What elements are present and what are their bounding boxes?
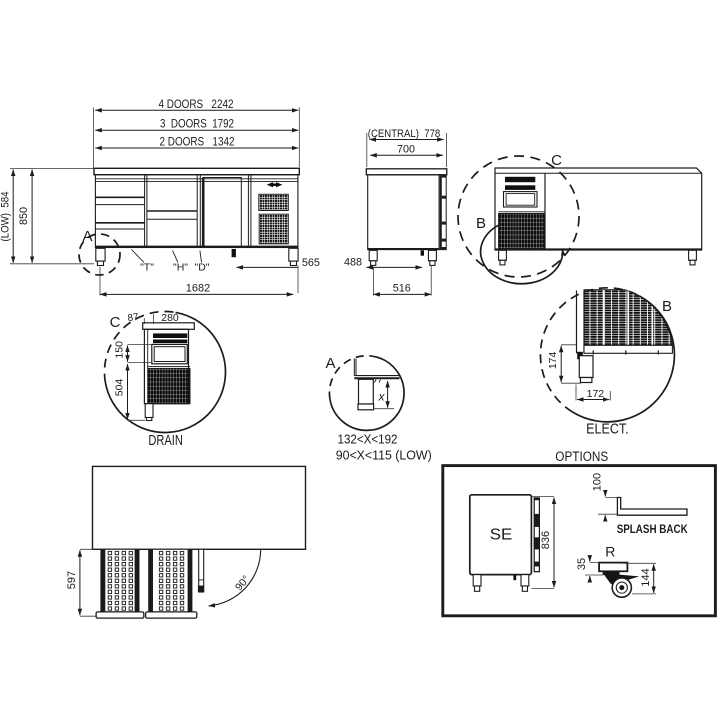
svg-text:DRAIN: DRAIN (148, 433, 183, 449)
svg-text:87: 87 (127, 312, 140, 325)
svg-text:565: 565 (302, 257, 320, 269)
svg-text:C: C (110, 314, 121, 331)
svg-text:132<X<192: 132<X<192 (338, 433, 398, 447)
svg-text:35: 35 (576, 558, 588, 570)
svg-text:(LOW) 584: (LOW) 584 (0, 192, 12, 242)
svg-text:A: A (325, 355, 335, 372)
svg-text:150: 150 (114, 341, 126, 359)
svg-text:A: A (82, 228, 92, 245)
svg-text:C: C (551, 152, 562, 169)
svg-text:700: 700 (397, 144, 415, 156)
svg-text:OPTIONS: OPTIONS (555, 449, 608, 464)
svg-text:2 DOORS 1342: 2 DOORS 1342 (160, 137, 235, 149)
svg-text:B: B (662, 298, 672, 315)
svg-text:SPLASH BACK: SPLASH BACK (617, 522, 688, 536)
svg-text:504: 504 (114, 379, 126, 397)
svg-text:"H": "H" (173, 262, 188, 274)
svg-text:SE: SE (490, 526, 513, 543)
svg-text:488: 488 (344, 257, 362, 269)
svg-text:100: 100 (592, 473, 604, 491)
svg-text:144: 144 (640, 568, 652, 586)
svg-text:836: 836 (540, 531, 552, 549)
svg-text:516: 516 (393, 283, 411, 295)
svg-text:(CENTRAL) 778: (CENTRAL) 778 (368, 128, 441, 140)
svg-text:597: 597 (66, 571, 78, 589)
svg-text:174: 174 (547, 351, 559, 369)
svg-text:"T": "T" (140, 262, 154, 274)
svg-text:172: 172 (587, 388, 605, 400)
svg-text:x: x (378, 390, 386, 404)
svg-text:1682: 1682 (186, 283, 210, 295)
svg-text:90<X<115 (LOW): 90<X<115 (LOW) (336, 449, 432, 463)
svg-text:4 DOORS 2242: 4 DOORS 2242 (159, 99, 234, 111)
svg-text:3 DOORS 1792: 3 DOORS 1792 (160, 119, 234, 131)
svg-text:"D": "D" (194, 262, 209, 274)
svg-text:R: R (605, 544, 615, 560)
svg-text:B: B (476, 215, 486, 232)
svg-text:ELECT.: ELECT. (586, 422, 629, 438)
svg-text:850: 850 (18, 207, 30, 225)
